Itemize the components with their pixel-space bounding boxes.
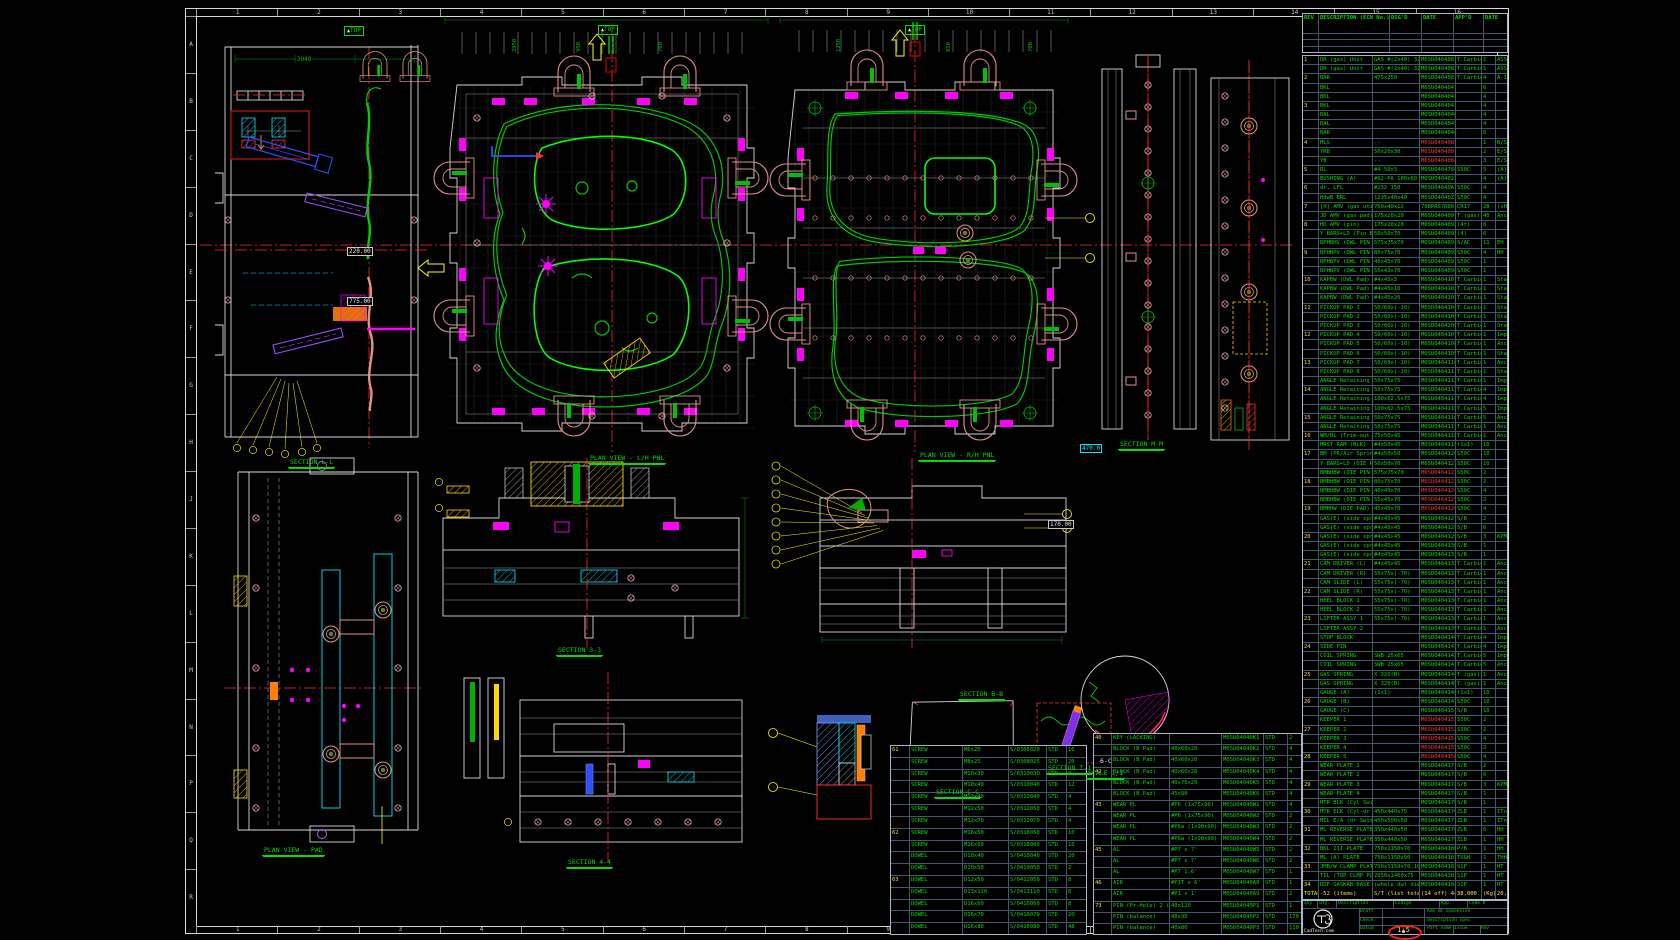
approval-stamp — [1388, 925, 1422, 940]
table-row: DOWELD16x60S/0416060STD8 — [891, 900, 1086, 912]
table-row: GAS(E) (side spr pad)#4x45x45M0SU0404131… — [1303, 551, 1507, 560]
table-row: GAUGE (C)M0SU0404151S/B10 — [1303, 707, 1507, 716]
table-row: WEAR PL#P6a (1x90x90)M0SU04040W3STD2 — [1094, 823, 1301, 834]
drawing-sheet: 12345678910111213141516 1234567891011121… — [0, 0, 1680, 940]
table-row: BLOCK (B Pad)40x60x20M0SU04040K3STD4 — [1094, 756, 1301, 767]
field-datum: Datum — [1360, 926, 1383, 934]
table-row: HEEL BLOCK 255x75x(-70)M0SU0404137T.Carb… — [1303, 606, 1507, 615]
table-row: 30MTR ELK (Cyl-dr Pin TC)450x440x75M0SU0… — [1303, 808, 1507, 817]
view-section-33 — [435, 458, 749, 648]
table-row: 5RL#4 50x5M0SU0404784S50C5(A) — [1303, 166, 1507, 175]
table-row: HEEL BLOCK 155x75x(-70)M0SU0404136T.Carb… — [1303, 597, 1507, 606]
table-row: 25GAS SPRINGX 320(B)M0SU0404144T.(gas)1A… — [1303, 671, 1507, 680]
table-row: ANGLE Retaining Pad 650x75x75M0SU0404117… — [1303, 423, 1507, 432]
table-row: 28KEEPER 5M0SU0404156S50C4 — [1303, 753, 1507, 762]
table-row: 34RDF GASKAB BASE(whole dwl die) x 4mM0S… — [1303, 881, 1507, 889]
table-row: ML (A) PLATE750x1150x90M0SU0404181TSGH1T… — [1303, 854, 1507, 863]
table-row: Y BARS+LD (DIE Pin BLK)50x50x70M0SU04041… — [1303, 460, 1507, 469]
rev-col-header: APP'D — [1454, 14, 1484, 33]
table-row: 62SCREWM16x50S/0316050STD10 — [891, 829, 1086, 841]
view-plan-rh — [770, 22, 1095, 440]
rev-col-header: DATE — [1484, 14, 1507, 33]
standard-parts-body: 40KEY (LACKING)M0SU04040K1STD2BLOCK (B P… — [1094, 734, 1301, 934]
table-row: PICKUP PAD 650/60x(-10)M0SU0404109T.Carb… — [1303, 350, 1507, 359]
table-row: 12PICKUP PAD 450/60x(-10)M0SU0404107T.Ca… — [1303, 331, 1507, 340]
table-row: GAS(E) (side spr pad)#4x45x45M0SU0404130… — [1303, 542, 1507, 551]
top-badge-2: TOP — [598, 25, 618, 35]
tb-h2: Description — [1337, 901, 1394, 908]
table-row: MTR BLK (Cyl Switch PL)M0SU0404175S/B1 — [1303, 799, 1507, 808]
table-row: 32BKL III PLATE750x1150x70M0SU0404180P/B… — [1303, 845, 1507, 854]
table-row: DR (gas) UnitGAS #(2x40) 32%M0SU0404082T… — [1303, 65, 1507, 74]
table-row: COIL SPRINGSWB 25x65M0SU0404143T.Carbide… — [1303, 661, 1507, 670]
table-row: WEAR PLATE 4M0SU0404174S/B1 — [1303, 790, 1507, 799]
table-row: PICKUP PAD 850/60x(-10)M0SU0404111T.Carb… — [1303, 368, 1507, 377]
label-detail-6c: 6-C — [1098, 758, 1114, 766]
table-row: 1DR (gas) UnitGAS #(2x40) 32%M0SU0404081… — [1303, 56, 1507, 65]
table-row: BKLM0SU04040424 — [1303, 93, 1507, 102]
label-section-33: SECTION 3-3 — [556, 647, 603, 656]
note-1: Asm mt dimension — [1425, 909, 1507, 918]
view-section-44 — [464, 672, 742, 862]
dim-775: 775.00 — [347, 297, 373, 306]
table-row: 10KAPBW (DWL Pad)#4x45x5M0SU0404101T.Car… — [1303, 276, 1507, 285]
field-check: Check — [1360, 918, 1383, 926]
table-row: 7[H] AMV (gas unit)750x40x1270BPRS7R00CR… — [1303, 203, 1507, 212]
table-row: 16WM/BL (Trim-out pad)75x50x45M0SU040411… — [1303, 432, 1507, 441]
vdim-4: 1250 — [836, 39, 842, 52]
table-row: 9BPHBPV (DWL PIN BLOCK)80x75x70M0SU04040… — [1303, 249, 1507, 258]
table-row: BMBHBW (DIE PIN BLK) 455x45x70M0SU040412… — [1303, 496, 1507, 505]
table-row: 15ANGLE Retaining Pad 550x75x75M0SU04041… — [1303, 414, 1507, 423]
table-row: BUSHING (A)#62-PA 180x60M0SU04040214(A) — [1303, 175, 1507, 184]
title-block-header: qty Qty. Description Codigo App. Code # — [1303, 901, 1507, 909]
title-block-notes: Asm mt dimension description spec Part n… — [1425, 909, 1507, 934]
table-row: BMBHBW (DIE PIN BLK) 1575x75x70M0SU04041… — [1303, 469, 1507, 478]
rev-col-header: DSG'D — [1390, 14, 1422, 33]
table-row: PIN (balance)40x80M0SU04040P3STD110 — [1094, 924, 1301, 934]
table-row: DOWELD13x110S/0413110STD8 — [891, 888, 1086, 900]
table-row: BMBHBW (DIE PIN BLK) 340x45x70M0SU040412… — [1303, 487, 1507, 496]
table-row: DOWELD10x40S/0410040STD20 — [891, 852, 1086, 864]
table-row: GAS(E) (side spr pad)#4x45x45M0SU0404127… — [1303, 515, 1507, 524]
table-row: SCREWM12x40S/0312040STD4 — [891, 793, 1086, 805]
table-row: DOWELD10x50S/0410050STD2 — [891, 864, 1086, 876]
table-row: BKLM0SU04040416 — [1303, 84, 1507, 93]
view-plan-lh — [418, 32, 768, 436]
table-row: BLOCK (B Pad)40x75x20M0SU04040K5STD4 — [1094, 779, 1301, 790]
table-row: AL#P7 1.6'M0SU04040W7STD1 — [1094, 868, 1301, 879]
table-row: BLOCK (B Pad)40x60x20M0SU04040K2STD4 — [1094, 745, 1301, 756]
table-row: WEAR PLATE 2M0SU0404172S/B6 — [1303, 771, 1507, 780]
table-row: WEAR PL#P6a (1x90x90)M0SU04040W4STD2 — [1094, 835, 1301, 846]
table-row: KAPBW (DWL Pad)#4x45x20M0SU0404103T.Carb… — [1303, 294, 1507, 303]
tb-h1: Qty. — [1318, 901, 1337, 908]
table-row: 6dr. LFL#232 150M0SU04040A1S50C4 — [1303, 184, 1507, 193]
table-row: GAS(E) (side spr pad)#4x45x45M0SU0404128… — [1303, 524, 1507, 533]
table-row: BPHBPV (DWL PIN BLOCK)40x45x70M0SU040409… — [1303, 258, 1507, 267]
vdim-1: 2950 — [512, 39, 518, 52]
table-row: 22CAM SLIDE (R)55x75x(-70)M0SU0404135T.C… — [1303, 588, 1507, 597]
vdim-6: 700 — [1028, 42, 1034, 52]
table-row: PIN (balance)40x90M0SU04040P2STD170 — [1094, 913, 1301, 924]
label-plan-rh: PLAN VIEW - R/H PNL — [918, 452, 996, 461]
rev-col-header: REV — [1303, 14, 1319, 33]
table-row: 3BKLM0SU04040434 — [1303, 102, 1507, 111]
table-row: 11PICKUP PAD 150/60x(-10)M0SU0404104T.Ca… — [1303, 304, 1507, 313]
table-row: 13PICKUP PAD 750/60x(-10)M0SU0404110T.Ca… — [1303, 359, 1507, 368]
table-row: 2BAR475x250M0SU0404083T.Carbide4A-1 — [1303, 74, 1507, 83]
table-row: SCREWM10x40S/0310040STD12 — [891, 781, 1086, 793]
table-row: ML REVERSE PLATE350x440x50M0SU0404179ZLB… — [1303, 836, 1507, 845]
dim-220: 220.00 — [347, 247, 373, 256]
rev-col-header: DATE — [1422, 14, 1454, 33]
table-row: 8HD AMV (pin)175x20x20M0SU0404092(4t)6 — [1303, 221, 1507, 230]
label-plan-lh: PLAN VIEW - L/H PNL — [588, 455, 666, 464]
table-row: 63DOWELD12x50S/0412050STD8 — [891, 876, 1086, 888]
table-row: MRST RAM (BLK)#4x50x45M0SU0404119(1x1)10 — [1303, 441, 1507, 450]
table-row: BPHBHV (DWL PIN BLOCK)575x75x70M0SU04040… — [1303, 239, 1507, 248]
label-section-mm: SECTION M-M — [1118, 441, 1165, 450]
vdim-3: 700 — [658, 42, 664, 52]
parts-list-body: 1DR (gas) UnitGAS #(2x40) 32%M0SU0404081… — [1303, 56, 1507, 890]
table-row: GAS SPRINGX 320(B)M0SU0404145T.(gas)1Anc… — [1303, 680, 1507, 689]
view-section-bb — [772, 458, 1072, 648]
table-row: GAUGE (A)(1x1)M0SU0404146(1x1)10 — [1303, 689, 1507, 698]
table-row: 20GAS(E) (side spr pad)#4x45x45M0SU04041… — [1303, 533, 1507, 542]
dim-470: 470.0 — [1080, 444, 1102, 453]
vdim-5: 850 — [946, 42, 952, 52]
label-section-44: SECTION 4-4 — [566, 859, 613, 868]
table-row: PICKUP PAD 550/60x(-10)M0SU0404108T.Carb… — [1303, 340, 1507, 349]
table-row: 24SIDE PINM0SU0404141T.Carbide4Imported — [1303, 643, 1507, 652]
table-row: STOP BLOCKM0SU0404140T.Carbide4Imported — [1303, 634, 1507, 643]
table-row: KEEPER 4M0SU0404155S50C2 — [1303, 744, 1507, 753]
table-row: 73PIN (Pr-Hole) 2 (L)40x120M0SU04040P1ST… — [1094, 902, 1301, 913]
footer-issue: Issue — [1454, 926, 1481, 934]
table-row: 19BMBHW (DIE PAD)45x45x70M0SU0404126S50C… — [1303, 505, 1507, 514]
footer-part-name: Part name — [1427, 926, 1454, 934]
field-draft: Draft — [1360, 909, 1383, 917]
tb-h4: App. — [1440, 901, 1468, 908]
table-row: DOWELD16x80S/0416080STD48 — [891, 923, 1086, 934]
label-plan-pad: PLAN VIEW - PAD — [262, 847, 325, 856]
table-row — [1303, 47, 1507, 53]
revision-table-body — [1303, 34, 1507, 53]
table-row: 4MLS--M0SU04040851B/STOP — [1303, 139, 1507, 148]
tb-h0: qty — [1303, 901, 1318, 908]
table-row: TIL (TOP CLMP PLATE)2050x1460x75M0SU0404… — [1303, 872, 1507, 881]
tb-h3: Codigo — [1394, 901, 1440, 908]
table-row: KEEPER 3M0SU0404154S50C4 — [1303, 735, 1507, 744]
table-row: AL#P7 x 7'M0SU04040W6STD2 — [1094, 857, 1301, 868]
table-row: 31ML REVERSE PLATE350x440x50M0SU0404178Z… — [1303, 826, 1507, 835]
table-row: YRB50x20x30M0SU04040872E/STOP — [1303, 148, 1507, 157]
table-row: HdwB BRL1235x40x40M0SU04040ZTS50C4 — [1303, 194, 1507, 203]
table-row: BPHBPV (DWL PIN BLOCK)55x43x70M0SU040409… — [1303, 267, 1507, 276]
label-section-cc: SECTION C-C — [934, 789, 981, 798]
revision-table-header: REVDESCRIPTION (ECN No.)DSG'DDATEAPP'DDA… — [1303, 14, 1507, 34]
parts-list-table: 1DR (gas) UnitGAS #(2x40) 32%M0SU0404081… — [1302, 55, 1508, 900]
table-row: BARM0SU04040466 — [1303, 129, 1507, 138]
table-row: 21CAM DRIVER (L)#4x45x45M0SU0404132T.Car… — [1303, 560, 1507, 569]
dim-3940: 3940 — [296, 56, 312, 63]
table-row: ANGLE Retaining Pad 3100x62.5x75M0SU0404… — [1303, 395, 1507, 404]
table-row: YB--M0SU04040883E/STOP — [1303, 157, 1507, 166]
table-row: LIFTER ASSY 2M0SU0404139T.Carbide1Anchor… — [1303, 625, 1507, 634]
centerlines — [200, 16, 1295, 688]
table-row: 26GAUGE (B)M0SU0404147S50C10 — [1303, 698, 1507, 707]
table-row: WEAR PL#P6 (1x75x90)M0SU04040W2STD2 — [1094, 812, 1301, 823]
table-row: ANGLE Retaining Pad 150x75x75M0SU0404112… — [1303, 377, 1507, 386]
table-row: KAPBW (DWL Pad)#4x45x10M0SU0404102T.Carb… — [1303, 285, 1507, 294]
company-logo: CadTech.com — [1303, 909, 1360, 934]
table-row: WEAR PLATE 1M0SU0404171S/B2 — [1303, 762, 1507, 771]
table-row: AIR#P1 x 1'M0SU04040A9STD2 — [1094, 890, 1301, 901]
view-strip-elevation-2 — [1211, 60, 1289, 445]
table-row: 29WEAR PLATE 3M0SU0404173S/B3KPM — [1303, 781, 1507, 790]
table-row: 27KEEPER 2M0SU0404153S50C2 — [1303, 726, 1507, 735]
table-row: 61SCREWM6x20S/0306020STD16 — [891, 746, 1086, 758]
table-row: BLOCK (B Pad)45x90M0SU04040K6STD4 — [1094, 790, 1301, 801]
table-row: MIL E/A (dr Switch Pad)450x500x50M0SU040… — [1303, 817, 1507, 826]
table-row: 40KEY (LACKING)M0SU04040K1STD2 — [1094, 734, 1301, 745]
standard-parts-table: 40KEY (LACKING)M0SU04040K1STD2BLOCK (B P… — [1093, 733, 1302, 935]
table-row: 14ANGLE Retaining Pad 250x75x75M0SU04041… — [1303, 386, 1507, 395]
rev-col-header: DESCRIPTION (ECN No.) — [1319, 14, 1390, 33]
view-strip-elevation-1 — [1102, 55, 1196, 440]
screws-table-body: 61SCREWM6x20S/0306020STD16SCREWM8x25S/03… — [891, 746, 1086, 934]
table-row: SCREWM12x70S/0312070STD4 — [891, 817, 1086, 829]
table-row: SCREWM12x50S/0312050STD4 — [891, 805, 1086, 817]
table-row: 18BMBHBW (DIE PIN BLK) 280x75x70M0SU0404… — [1303, 478, 1507, 487]
table-row: 46AIR#P1T x 6'M0SU04040A8STD1 — [1094, 879, 1301, 890]
view-plan-pad — [234, 458, 418, 844]
table-row: CAM DRIVER (R)55x75x(-70)M0SU0404133T.Ca… — [1303, 570, 1507, 579]
table-row: Y BARS+LD (Pin BLOCK)50x50x70M0SU0404093… — [1303, 230, 1507, 239]
label-section-ll: SECTION L-L — [288, 459, 335, 468]
table-row: PICKUP PAD 350/60x(-10)M0SU0404106T.Carb… — [1303, 322, 1507, 331]
tb-h5: Code # — [1468, 901, 1507, 908]
table-row: 17BM (PR/Air Spring)#4x50x50M0SU0404120S… — [1303, 450, 1507, 459]
table-row: JD AMV (gas pad)175x20x20M0SU0404091T.(g… — [1303, 212, 1507, 221]
table-row: 43WEAR PL#P6 (1x75x90)M0SU04040W1STD4 — [1094, 801, 1301, 812]
table-row: DOWELD16x70S/0416070STD20 — [891, 911, 1086, 923]
view-side-section — [215, 45, 430, 458]
revision-table: REVDESCRIPTION (ECN No.)DSG'DDATEAPP'DDA… — [1302, 13, 1508, 53]
table-row: 33JMB/W CLAMP PLATE750x1150x70.10M0SU040… — [1303, 863, 1507, 872]
table-row: BALM0SU04040444 — [1303, 111, 1507, 120]
table-row: ANGLE Retaining Pad 4100x62.5x75M0SU0404… — [1303, 405, 1507, 414]
table-row: 45AL#P7 x 7'M0SU04040W5STD2 — [1094, 846, 1301, 857]
footer-rev: Rev — [1481, 926, 1507, 934]
table-row: KEEPER 1M0SU0404152S50C2 — [1303, 716, 1507, 725]
table-row: COIL SPRINGSWB 25x65M0SU0404142T.Carbide… — [1303, 652, 1507, 661]
table-row: 23LIFTER ASSY 155x75x(-70)M0SU0404138T.C… — [1303, 615, 1507, 624]
dim-170: 170.00 — [1048, 520, 1074, 529]
top-badge-3: TOP — [905, 25, 925, 35]
top-badge-1: TOP — [344, 26, 364, 36]
label-section-bb: SECTION B-B — [958, 691, 1005, 700]
table-row: BALM0SU04040454 — [1303, 120, 1507, 129]
vdim-2: 950 — [576, 42, 582, 52]
note-2: description spec — [1425, 918, 1507, 927]
table-row: SCREWM16x60S/0316060STD10 — [891, 841, 1086, 853]
table-row: PICKUP PAD 250/60x(-10)M0SU0404105T.Carb… — [1303, 313, 1507, 322]
parts-list-total-row: TOTAL-52 (items)S/T (list total)(14 off)… — [1303, 890, 1507, 899]
table-row: CAM SLIDE (L)55x75x(-70)M0SU0404134T.Car… — [1303, 579, 1507, 588]
label-scale-11: SCALE 1/1 — [1086, 770, 1125, 779]
